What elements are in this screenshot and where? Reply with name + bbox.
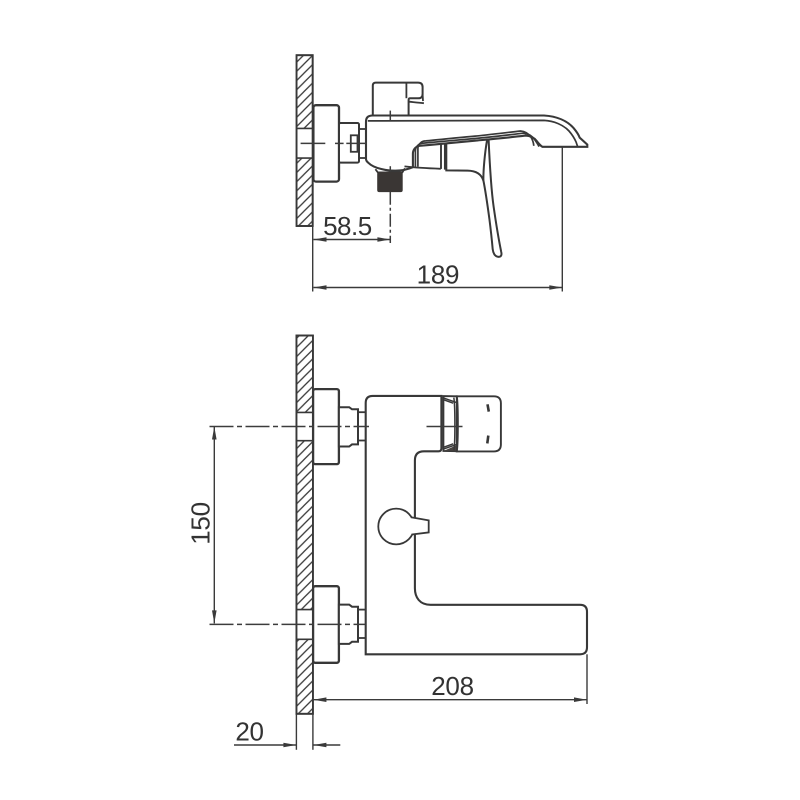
svg-text:208: 208 (431, 671, 473, 701)
svg-text:189: 189 (417, 260, 459, 290)
svg-text:150: 150 (186, 502, 216, 544)
svg-text:58.5: 58.5 (323, 211, 372, 241)
svg-text:20: 20 (235, 717, 263, 747)
